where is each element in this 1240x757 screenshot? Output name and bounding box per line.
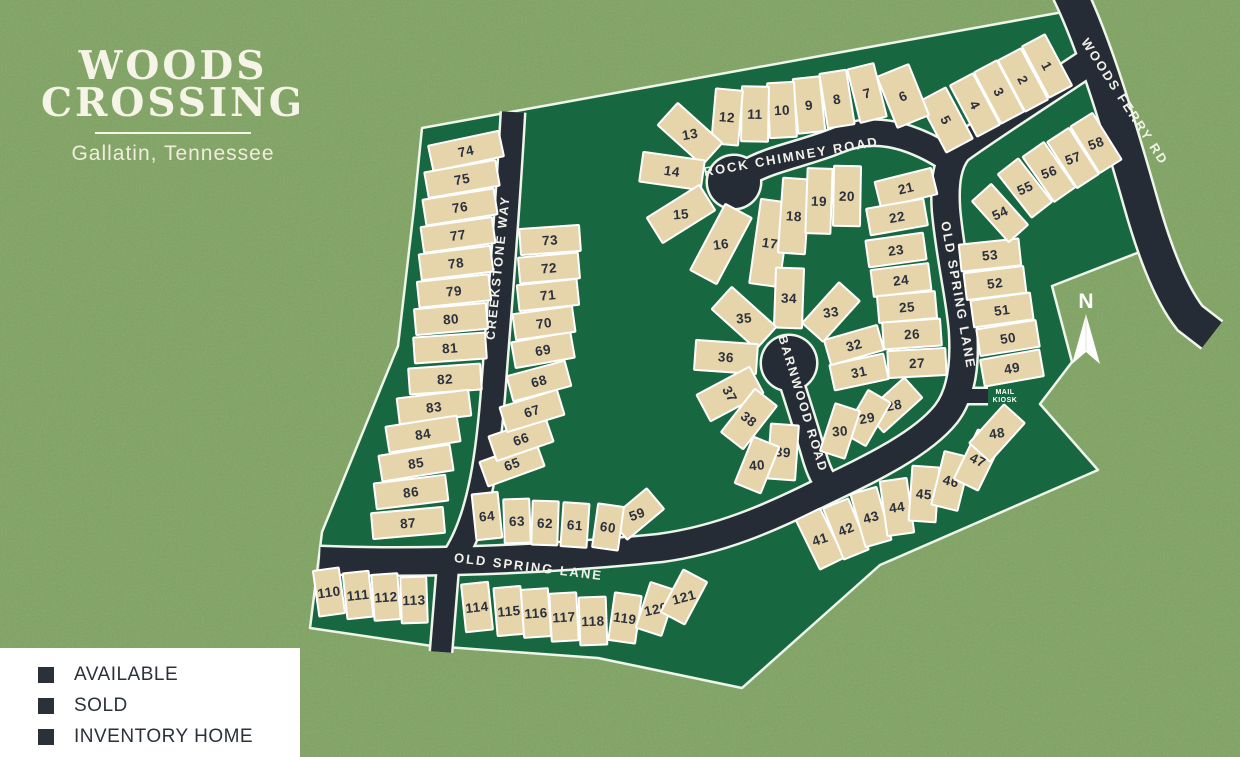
legend-item-available: AVAILABLE xyxy=(38,664,300,686)
lot-116-number: 116 xyxy=(524,605,548,622)
lot-77-number: 77 xyxy=(449,227,467,244)
lot-44-number: 44 xyxy=(888,499,906,516)
lot-115-number: 115 xyxy=(497,603,522,620)
lot-83-number: 83 xyxy=(425,399,443,416)
lot-64-number: 64 xyxy=(478,508,496,525)
lot-70-number: 70 xyxy=(535,315,553,332)
lot-9-number: 9 xyxy=(804,97,814,113)
lot-80[interactable]: 80 xyxy=(414,303,488,335)
lot-81[interactable]: 81 xyxy=(413,333,487,364)
lot-113[interactable]: 113 xyxy=(400,577,428,624)
lot-80-number: 80 xyxy=(442,311,459,327)
lot-81-number: 81 xyxy=(442,340,459,356)
lot-63[interactable]: 63 xyxy=(503,499,531,544)
community-name-line2: CROSSING xyxy=(28,85,318,122)
lot-53-number: 53 xyxy=(981,247,999,264)
lot-72[interactable]: 72 xyxy=(518,252,580,283)
lot-25[interactable]: 25 xyxy=(877,291,937,323)
legend-item-sold: SOLD xyxy=(38,695,300,717)
available-swatch-icon xyxy=(38,667,54,683)
community-location: Gallatin, Tennessee xyxy=(28,142,318,166)
creekstone-way-stub xyxy=(441,566,448,652)
lot-110[interactable]: 110 xyxy=(313,567,345,616)
lot-52-number: 52 xyxy=(986,275,1004,292)
lot-14-number: 14 xyxy=(663,163,681,180)
lot-115[interactable]: 115 xyxy=(493,586,524,636)
site-plan-page: 1234567891011121314151617181920212223242… xyxy=(0,0,1240,757)
lot-79-number: 79 xyxy=(445,283,463,300)
lot-50-number: 50 xyxy=(999,330,1017,347)
legend-label-inventory-home: INVENTORY HOME xyxy=(74,726,253,748)
lot-16-number: 16 xyxy=(712,236,730,253)
mail-kiosk-label-line1: MAIL xyxy=(995,389,1014,396)
lot-33-number: 33 xyxy=(822,304,840,321)
lot-78-number: 78 xyxy=(447,255,465,272)
lot-63-number: 63 xyxy=(509,514,526,530)
lot-110-number: 110 xyxy=(316,583,341,601)
sold-swatch-icon xyxy=(38,698,54,714)
lot-60[interactable]: 60 xyxy=(592,503,624,550)
lot-20-number: 20 xyxy=(839,189,855,204)
lot-26-number: 26 xyxy=(904,326,921,342)
lot-73-number: 73 xyxy=(542,232,559,248)
lot-111-number: 111 xyxy=(346,587,370,604)
lot-9[interactable]: 9 xyxy=(793,76,826,134)
north-label: N xyxy=(1078,290,1093,313)
lot-20[interactable]: 20 xyxy=(833,166,861,226)
legend-label-available: AVAILABLE xyxy=(74,664,178,686)
lot-73[interactable]: 73 xyxy=(519,225,581,255)
lot-10-number: 10 xyxy=(774,102,791,118)
lot-117[interactable]: 117 xyxy=(549,592,578,641)
legend-label-sold: SOLD xyxy=(74,695,128,717)
lot-85-number: 85 xyxy=(407,455,425,472)
lot-72-number: 72 xyxy=(540,260,557,276)
lot-51-number: 51 xyxy=(993,302,1011,319)
mail-kiosk-label-line2: KIOSK xyxy=(993,397,1018,404)
lot-111[interactable]: 111 xyxy=(343,571,374,619)
lot-53[interactable]: 53 xyxy=(959,238,1021,271)
lot-116[interactable]: 116 xyxy=(521,588,551,638)
lot-25-number: 25 xyxy=(898,299,915,315)
lot-117-number: 117 xyxy=(552,609,576,625)
lot-17-number: 17 xyxy=(761,235,779,252)
lot-12-number: 12 xyxy=(718,109,735,125)
lot-26[interactable]: 26 xyxy=(882,319,942,350)
lot-27-number: 27 xyxy=(909,355,926,371)
lot-112[interactable]: 112 xyxy=(371,573,400,621)
lot-49-number: 49 xyxy=(1003,360,1021,378)
lot-61-number: 61 xyxy=(566,517,583,533)
lot-40-number: 40 xyxy=(748,457,765,473)
lot-27[interactable]: 27 xyxy=(887,348,946,378)
lot-119-number: 119 xyxy=(612,609,637,627)
lot-118-number: 118 xyxy=(581,613,605,629)
lot-62-number: 62 xyxy=(537,516,554,532)
lot-19[interactable]: 19 xyxy=(805,168,832,234)
lot-113-number: 113 xyxy=(402,592,426,608)
lot-34[interactable]: 34 xyxy=(774,268,804,329)
lot-114-number: 114 xyxy=(465,599,490,616)
lot-69-number: 69 xyxy=(534,342,552,360)
lot-13-number: 13 xyxy=(681,126,699,144)
lot-64[interactable]: 64 xyxy=(472,492,503,540)
lot-19-number: 19 xyxy=(811,194,828,210)
lot-35-number: 35 xyxy=(735,310,752,326)
community-title-block: WOODS CROSSING Gallatin, Tennessee xyxy=(28,48,318,166)
lot-87[interactable]: 87 xyxy=(371,507,445,539)
lot-62[interactable]: 62 xyxy=(531,501,559,546)
lot-82-number: 82 xyxy=(437,371,454,387)
lot-45-number: 45 xyxy=(915,486,932,502)
lot-112-number: 112 xyxy=(374,589,398,606)
lot-119[interactable]: 119 xyxy=(608,592,641,643)
lot-34-number: 34 xyxy=(781,291,798,307)
lot-11-number: 11 xyxy=(747,107,763,122)
lot-22-number: 22 xyxy=(888,209,906,227)
lot-118[interactable]: 118 xyxy=(579,597,608,646)
lot-48-number: 48 xyxy=(988,425,1006,442)
lot-82[interactable]: 82 xyxy=(408,364,482,395)
lot-23-number: 23 xyxy=(887,242,905,259)
lot-60-number: 60 xyxy=(599,519,617,536)
legend-item-inventory-home: INVENTORY HOME xyxy=(38,726,300,748)
lot-11[interactable]: 11 xyxy=(741,86,769,141)
lot-24-number: 24 xyxy=(892,272,910,289)
inventory-home-swatch-icon xyxy=(38,729,54,745)
lot-87-number: 87 xyxy=(399,515,416,531)
lot-36-number: 36 xyxy=(717,349,734,365)
lot-86-number: 86 xyxy=(402,484,420,501)
lot-10[interactable]: 10 xyxy=(767,82,797,138)
lot-76-number: 76 xyxy=(451,199,469,216)
title-divider xyxy=(95,132,251,134)
lot-71-number: 71 xyxy=(539,287,557,304)
lot-114[interactable]: 114 xyxy=(461,582,493,633)
lot-84-number: 84 xyxy=(414,426,432,443)
lot-18-number: 18 xyxy=(785,208,802,224)
legend: AVAILABLE SOLD INVENTORY HOME xyxy=(0,648,300,757)
lot-61[interactable]: 61 xyxy=(560,502,589,548)
lot-30-number: 30 xyxy=(831,423,848,439)
lot-15-number: 15 xyxy=(672,206,689,222)
lot-75-number: 75 xyxy=(453,171,471,189)
